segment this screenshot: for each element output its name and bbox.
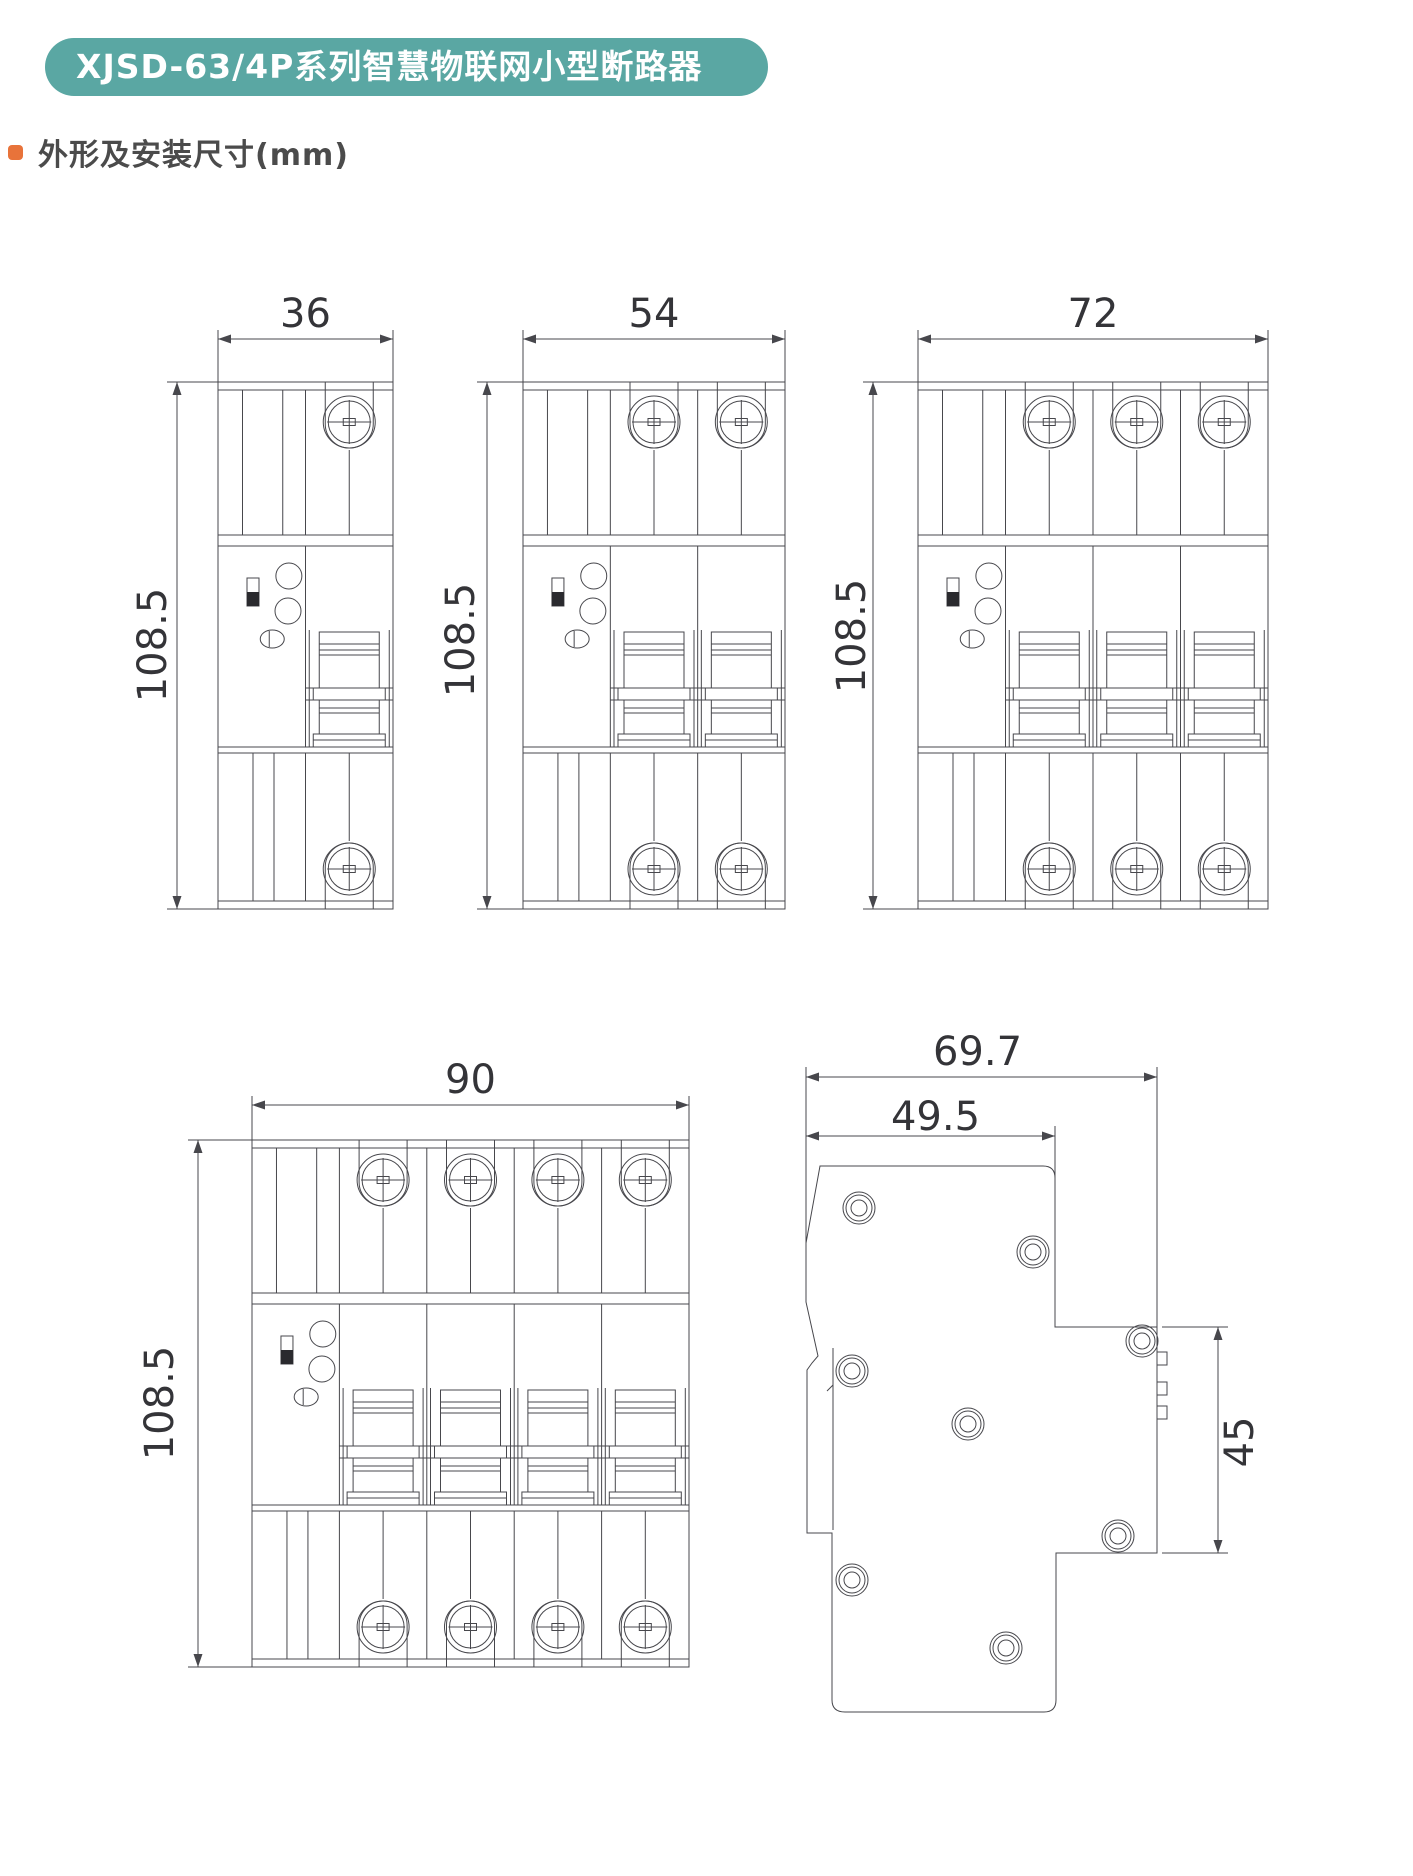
- front-view-4-pole: [188, 1096, 689, 1667]
- dim-side-upper-depth: 49.5: [863, 1095, 1008, 1139]
- datasheet-page: XJSD-63/4P系列智慧物联网小型断路器 外形及安装尺寸(mm) 36 54…: [0, 0, 1413, 1876]
- side-view: [806, 1067, 1228, 1712]
- dim-height-2p: 108.5: [439, 555, 483, 725]
- front-view-3-pole: [863, 330, 1268, 909]
- dim-height-1p: 108.5: [131, 560, 175, 730]
- dim-height-4p: 108.5: [138, 1318, 182, 1488]
- dim-side-total-depth: 69.7: [905, 1030, 1050, 1074]
- dim-width-1p: 36: [218, 292, 393, 336]
- dimension-drawings-canvas: [0, 0, 1413, 1876]
- dim-height-3p: 108.5: [830, 551, 874, 721]
- dim-width-3p: 72: [918, 292, 1268, 336]
- dim-width-4p: 90: [252, 1058, 689, 1102]
- front-view-2-pole: [477, 330, 785, 909]
- front-view-1-pole: [167, 330, 393, 909]
- dim-side-terminal-height: 45: [1218, 1372, 1262, 1512]
- dim-width-2p: 54: [523, 292, 785, 336]
